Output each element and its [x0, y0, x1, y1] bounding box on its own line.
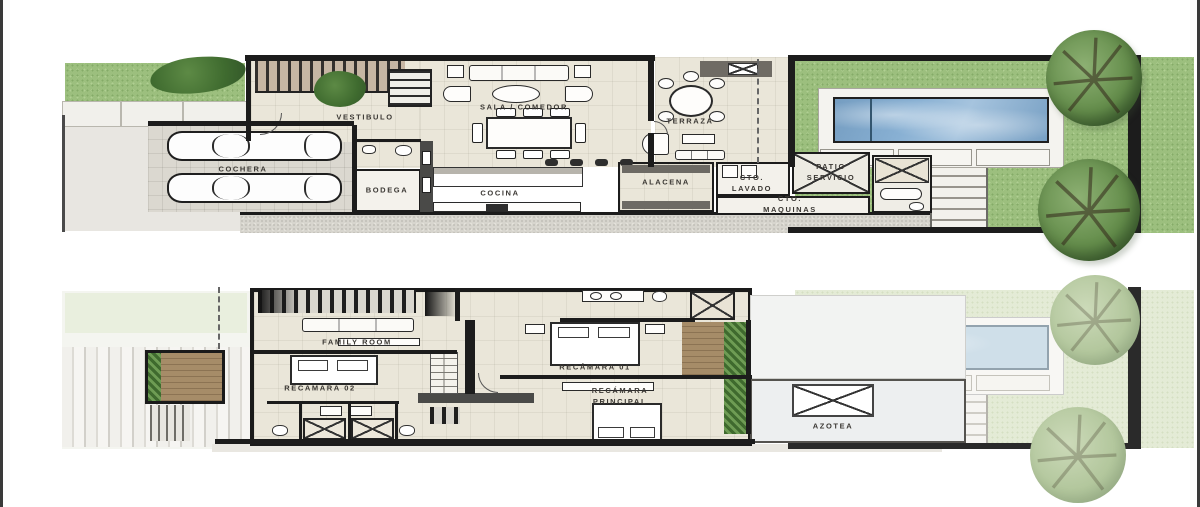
terraza-chair [709, 78, 725, 89]
floor-plan-canvas: COCHERA VESTIBULO BODEGA SALA / COMEDOR [0, 0, 1200, 507]
hall-wall [355, 139, 421, 142]
family-room-south-wall [252, 350, 457, 354]
bed-icon [550, 322, 640, 366]
building-north-wall [245, 55, 655, 61]
armchair-icon [443, 86, 471, 102]
sofa-icon [469, 65, 569, 81]
vanity-sink-icon [350, 406, 372, 416]
bed-icon [592, 403, 662, 443]
cochera-top-wall [148, 121, 354, 126]
nightstand [645, 324, 665, 334]
bath-divider-wall [348, 404, 351, 442]
bath-wall [267, 401, 399, 404]
toilet-icon [272, 425, 288, 436]
kitchen-bar-counter [433, 167, 583, 187]
stair-shading-wedge [425, 290, 457, 316]
ghost-deck-tile [976, 375, 1050, 391]
bar-stool-icon [545, 159, 558, 166]
kitchen-stove-icon [422, 177, 431, 193]
room-label-recamara-principal: RECÁMARA PRINCIPAL [592, 385, 649, 408]
wood-deck [161, 353, 222, 401]
tree-icon [1046, 30, 1142, 126]
room-label-recamara-02: RECÁMARA 02 [284, 382, 356, 393]
bed-icon [290, 355, 378, 385]
corridor-stairs [430, 407, 460, 424]
car-icon [167, 131, 342, 161]
sala-terraza-wall [648, 57, 654, 121]
bath-divider-wall [299, 404, 302, 442]
room-label-cochera: COCHERA [218, 163, 267, 174]
room-label-alacena: ALACENA [642, 176, 690, 187]
balcony-wall [746, 320, 751, 434]
room-label-sala-comedor: SALA / COMEDOR [480, 101, 568, 112]
shower-icon [351, 418, 394, 440]
toilet-icon [652, 291, 667, 302]
dining-chair [575, 123, 586, 143]
room-label-terraza: TERRAZA [666, 115, 713, 126]
sink-icon [362, 145, 376, 154]
side-table [574, 65, 591, 78]
car-icon [167, 173, 342, 203]
room-label-cocina: COCINA [480, 187, 519, 198]
side-table [447, 65, 464, 78]
terraza-sofa-icon [675, 150, 725, 160]
dining-chair [496, 150, 516, 159]
tree-icon [1038, 159, 1140, 261]
principal-closet-band [418, 393, 534, 403]
stair-shading-wedge [258, 290, 300, 313]
ground-floor-plan: COCHERA VESTIBULO BODEGA SALA / COMEDOR [62, 55, 1140, 235]
ghost-tree-icon [1030, 407, 1126, 503]
terraza-chair [683, 71, 699, 82]
sala-terraza-wall [648, 133, 654, 167]
shower-icon [875, 158, 929, 183]
toilet-icon [909, 202, 924, 211]
room-label-cto-maquinas: CTO. MAQUINAS [763, 193, 817, 216]
room-label-recamara-01: RECÁMARA 01 [559, 361, 631, 372]
pool [833, 97, 1049, 143]
ghost-tree-icon [1050, 275, 1140, 365]
kitchen-sink-icon [422, 151, 431, 165]
upper-floor-plan: AZOTEA FAMILY ROOM RECÁMARA 02 [62, 287, 1140, 457]
corridor-wall [465, 320, 475, 394]
terraza-armchair [642, 133, 669, 155]
bathtub-icon [880, 188, 922, 200]
toilet-icon [399, 425, 415, 436]
alacena-shelf [622, 165, 710, 173]
room-label-bodega: BODEGA [366, 184, 409, 195]
nightstand [525, 324, 545, 334]
terraza-skylight [728, 63, 758, 75]
closet-shelving [430, 352, 458, 394]
bath-divider-wall [395, 404, 398, 442]
dining-chair [550, 150, 570, 159]
shower-icon [690, 291, 735, 320]
terraza-east-wall [788, 57, 795, 167]
alacena-shelf [622, 201, 710, 209]
balcony-left [145, 350, 225, 404]
dining-chair [523, 150, 543, 159]
terraza-table [682, 134, 715, 144]
wood-deck [682, 322, 724, 375]
shower-icon [303, 418, 346, 440]
terraza-chair [658, 78, 674, 89]
pool-lane-line [870, 99, 872, 141]
vestibulo-stairs [388, 69, 432, 107]
bar-stool-icon [595, 159, 608, 166]
basin-icon [610, 292, 622, 300]
dining-table [486, 117, 572, 149]
balcony-louver [150, 405, 190, 441]
room-label-azotea: AZOTEA [813, 420, 853, 431]
roof-dashed-line [757, 59, 759, 163]
roof-dashed-line-upper [218, 287, 220, 349]
armchair-icon [565, 86, 593, 102]
vanity-sink-icon [320, 406, 342, 416]
vestibulo-left-wall [246, 57, 251, 141]
coffee-table [492, 85, 540, 103]
room-label-patio-servicio: PATIO SERVICIO [807, 161, 856, 184]
building-south-wall-upper [215, 439, 755, 444]
terraza-round-table [669, 85, 713, 117]
family-room-sofa-icon [302, 318, 414, 332]
lot-left-wall [62, 115, 65, 232]
dining-chair [472, 123, 483, 143]
room-label-family-room: FAMILY ROOM [322, 336, 392, 347]
toilet-icon [395, 145, 412, 156]
bar-stool-icon [570, 159, 583, 166]
basin-icon [590, 292, 602, 300]
kitchen-appliance [486, 204, 508, 211]
room-label-vestibulo: VESTIBULO [336, 111, 393, 122]
planter-strip-icon [148, 353, 161, 401]
ensuite-wall [560, 318, 695, 322]
garden-step-path [930, 168, 988, 232]
roof-slab [750, 295, 966, 379]
front-paver-joint [120, 101, 122, 127]
room-label-cto-lavado: CTO. LAVADO [732, 172, 772, 195]
corridor-wall [455, 288, 460, 321]
azotea-skylight [792, 384, 874, 417]
bedroom-divider-wall [500, 375, 752, 379]
